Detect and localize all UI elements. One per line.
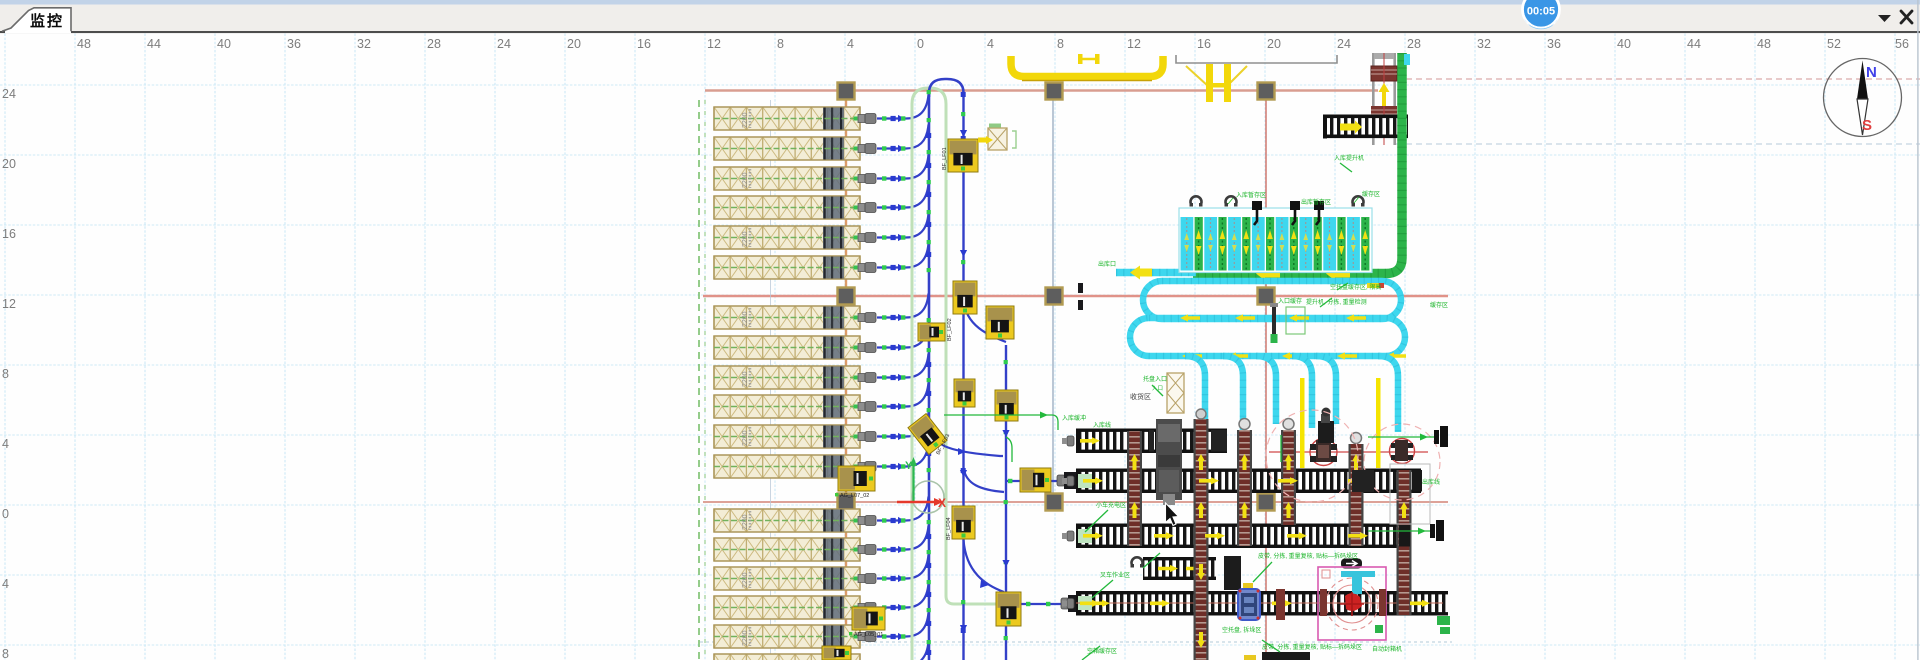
svg-text:28: 28 [427, 37, 441, 51]
svg-text:44: 44 [1687, 37, 1701, 51]
svg-text:4: 4 [2, 577, 9, 591]
svg-text:2200: 2200 [742, 172, 749, 188]
svg-text:小车充电区: 小车充电区 [1096, 501, 1126, 509]
svg-text:12: 12 [707, 37, 721, 51]
svg-text:12: 12 [1127, 37, 1141, 51]
svg-text:4: 4 [2, 437, 9, 451]
svg-text:44: 44 [147, 37, 161, 51]
svg-text:BF_LF02: BF_LF02 [947, 318, 953, 341]
svg-text:2200: 2200 [742, 112, 749, 128]
svg-text:2200: 2200 [742, 371, 749, 387]
svg-text:8: 8 [1057, 37, 1064, 51]
svg-text:空箱缓存区: 空箱缓存区 [1087, 647, 1117, 655]
svg-text:2200: 2200 [742, 514, 749, 530]
svg-text:BF_LF01: BF_LF01 [942, 147, 948, 170]
svg-text:16: 16 [2, 227, 16, 241]
svg-text:2200: 2200 [742, 311, 749, 327]
svg-text:28: 28 [1407, 37, 1421, 51]
svg-text:AG_L07_02: AG_L07_02 [840, 493, 869, 499]
svg-text:N: N [1866, 64, 1877, 81]
svg-text:36: 36 [287, 37, 301, 51]
svg-text:40: 40 [217, 37, 231, 51]
svg-text:入库线: 入库线 [1093, 421, 1111, 429]
svg-text:16: 16 [637, 37, 651, 51]
svg-text:8: 8 [2, 367, 9, 381]
svg-text:2200: 2200 [742, 572, 749, 588]
svg-text:0: 0 [2, 507, 9, 521]
svg-text:12: 12 [2, 297, 16, 311]
svg-text:收货区: 收货区 [1130, 392, 1151, 401]
svg-text:24: 24 [1337, 37, 1351, 51]
svg-text:20: 20 [1267, 37, 1281, 51]
svg-text:2200: 2200 [742, 630, 749, 646]
svg-text:36: 36 [1547, 37, 1561, 51]
svg-text:56: 56 [1895, 37, 1909, 51]
svg-text:X: X [938, 496, 946, 510]
svg-text:出库线: 出库线 [1422, 478, 1440, 486]
svg-text:2200: 2200 [742, 430, 749, 446]
svg-text:00:05: 00:05 [1527, 6, 1555, 18]
svg-text:自动封箱机: 自动封箱机 [1372, 645, 1402, 653]
svg-text:缓存区: 缓存区 [1362, 190, 1380, 198]
svg-text:皮带, 分拣, 重量复核, 贴标—拆码垛区: 皮带, 分拣, 重量复核, 贴标—拆码垛区 [1262, 643, 1362, 651]
svg-text:AG_L05_01: AG_L05_01 [854, 632, 883, 638]
svg-text:皮带, 分拣, 重量复核, 贴标—拆码垛区: 皮带, 分拣, 重量复核, 贴标—拆码垛区 [1258, 552, 1358, 560]
svg-text:8: 8 [777, 37, 784, 51]
svg-text:32: 32 [1477, 37, 1491, 51]
svg-text:叉车作业区: 叉车作业区 [1100, 571, 1130, 579]
svg-text:入库提升机: 入库提升机 [1334, 154, 1364, 162]
svg-text:入库暂存区: 入库暂存区 [1236, 191, 1266, 199]
svg-text:空托盘缓存区, 限高: 空托盘缓存区, 限高 [1330, 283, 1381, 291]
svg-text:8: 8 [2, 647, 9, 660]
svg-text:4: 4 [987, 37, 994, 51]
svg-text:32: 32 [357, 37, 371, 51]
svg-text:出库暂存区: 出库暂存区 [1301, 198, 1331, 206]
svg-text:空托盘, 拆垛区: 空托盘, 拆垛区 [1222, 626, 1261, 634]
svg-text:48: 48 [77, 37, 91, 51]
svg-text:40: 40 [1617, 37, 1631, 51]
svg-text:Y: Y [905, 460, 913, 472]
svg-text:24: 24 [497, 37, 511, 51]
svg-text:入库缓冲: 入库缓冲 [1062, 414, 1086, 422]
svg-text:24: 24 [2, 87, 16, 101]
svg-text:16: 16 [1197, 37, 1211, 51]
svg-text:2200: 2200 [742, 231, 749, 247]
svg-text:20: 20 [567, 37, 581, 51]
svg-text:托盘入口: 托盘入口 [1143, 375, 1167, 383]
svg-text:48: 48 [1757, 37, 1771, 51]
svg-text:入口缓存: 入口缓存 [1278, 297, 1302, 305]
svg-text:提升机, 分拣, 重量检测: 提升机, 分拣, 重量检测 [1306, 298, 1367, 306]
svg-text:BF_LF04: BF_LF04 [946, 517, 952, 540]
svg-text:52: 52 [1827, 37, 1841, 51]
svg-text:0: 0 [917, 37, 924, 51]
svg-text:监控: 监控 [30, 12, 64, 30]
svg-text:20: 20 [2, 157, 16, 171]
svg-text:4: 4 [847, 37, 854, 51]
svg-text:缓存区: 缓存区 [1430, 301, 1448, 309]
svg-text:出库口: 出库口 [1098, 260, 1116, 268]
svg-text:S: S [1862, 117, 1872, 134]
